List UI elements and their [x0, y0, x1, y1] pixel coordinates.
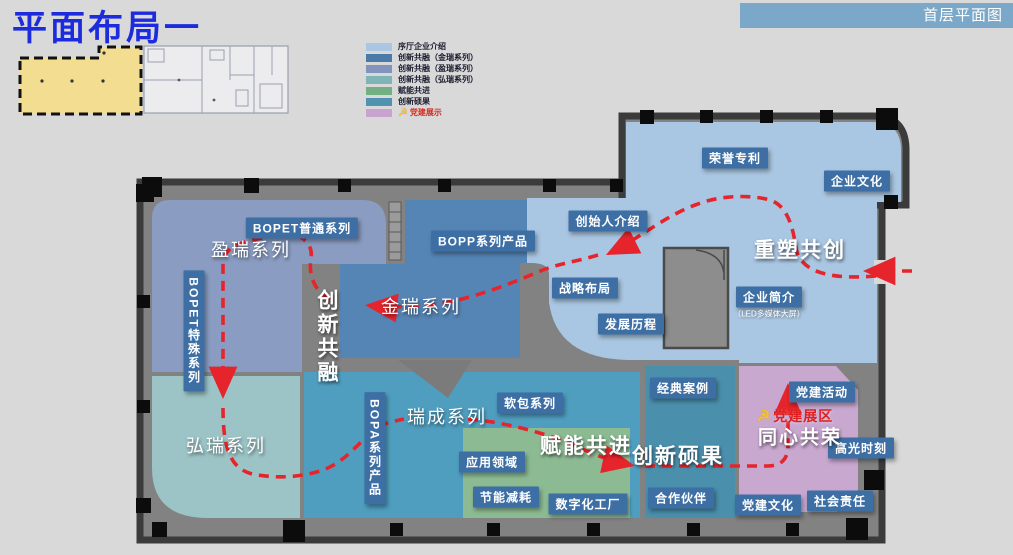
zone-party — [739, 366, 858, 512]
zone-achievements — [645, 366, 735, 518]
floor-plan-map — [0, 0, 1013, 555]
zone-empower — [463, 428, 630, 518]
slide: 平面布局一 首层平面图 序厅企业介绍 — [0, 0, 1013, 555]
stairwell — [664, 248, 728, 348]
